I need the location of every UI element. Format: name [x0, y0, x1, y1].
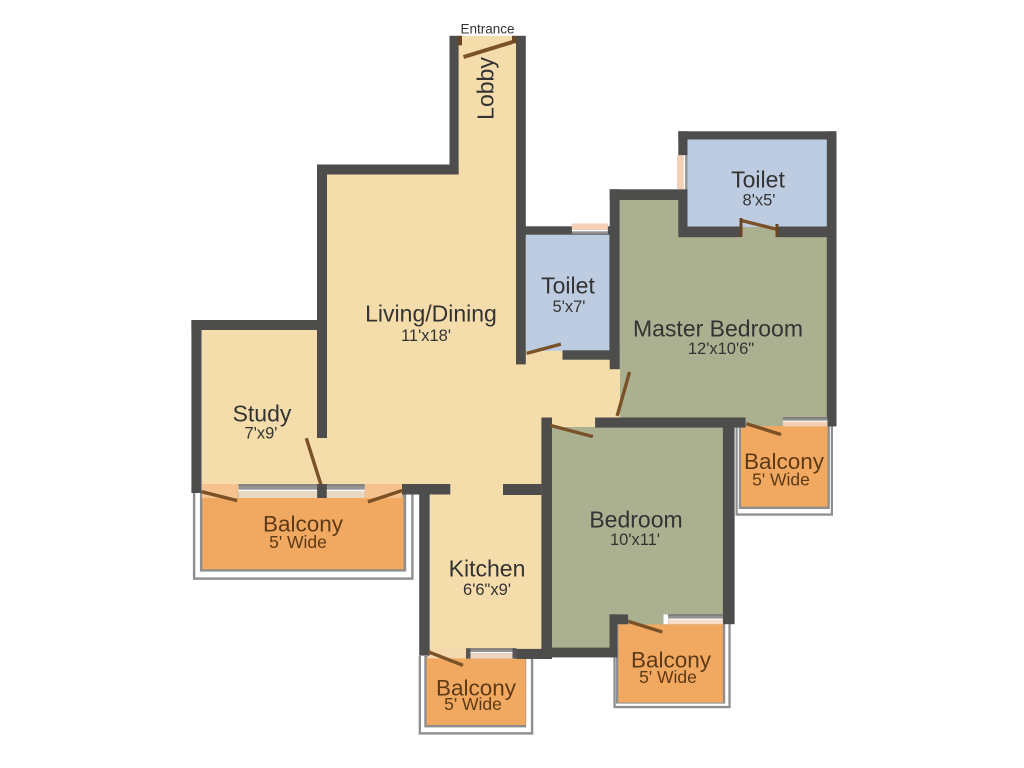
svg-text:10'x11': 10'x11': [610, 531, 660, 549]
svg-text:Lobby: Lobby: [473, 57, 499, 120]
svg-text:5' Wide: 5' Wide: [752, 469, 810, 489]
svg-text:12'x10'6": 12'x10'6": [688, 340, 754, 358]
svg-text:Living/Dining: Living/Dining: [365, 301, 497, 327]
svg-text:Bedroom: Bedroom: [589, 507, 682, 533]
svg-text:Toilet: Toilet: [541, 273, 595, 299]
svg-text:5' Wide: 5' Wide: [639, 667, 697, 687]
svg-text:8'x5': 8'x5': [743, 192, 776, 210]
svg-text:5' Wide: 5' Wide: [444, 694, 502, 714]
svg-text:Master Bedroom: Master Bedroom: [633, 316, 803, 342]
svg-text:Toilet: Toilet: [731, 167, 785, 193]
svg-text:Kitchen: Kitchen: [449, 556, 526, 582]
svg-text:7'x9': 7'x9': [245, 424, 278, 442]
svg-text:Study: Study: [233, 401, 292, 427]
svg-text:11'x18': 11'x18': [401, 327, 451, 345]
svg-text:Entrance: Entrance: [460, 22, 514, 37]
svg-text:5' Wide: 5' Wide: [269, 532, 327, 552]
svg-text:5'x7': 5'x7': [553, 298, 586, 316]
svg-text:6'6"x9': 6'6"x9': [463, 581, 511, 599]
